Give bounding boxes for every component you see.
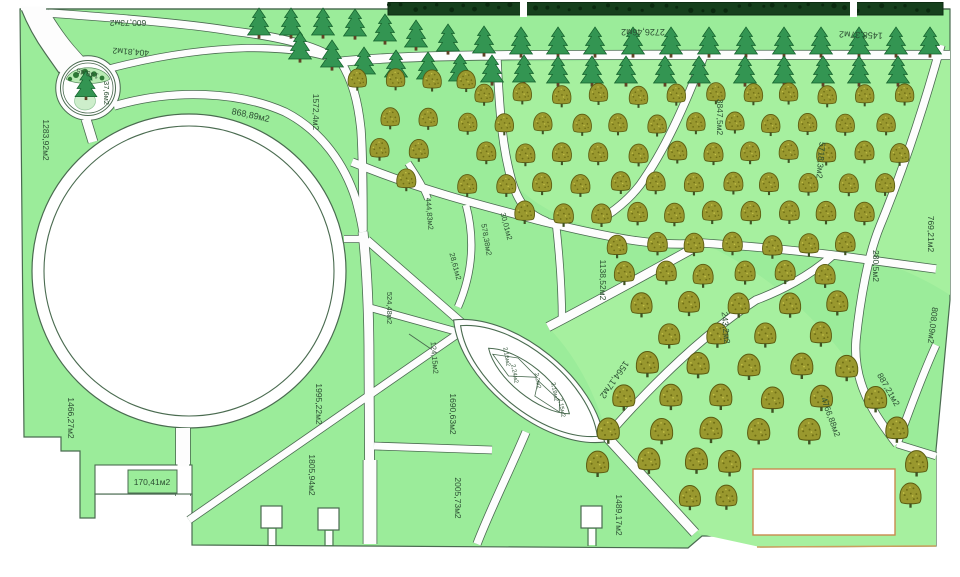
svg-text:1995,22м2: 1995,22м2 bbox=[314, 383, 324, 425]
svg-text:1138,52м2: 1138,52м2 bbox=[598, 260, 608, 301]
svg-text:3847,5м2: 3847,5м2 bbox=[715, 99, 725, 136]
svg-text:1690,63м2: 1690,63м2 bbox=[448, 393, 458, 435]
svg-text:524,48м2: 524,48м2 bbox=[385, 292, 394, 324]
svg-text:170,41м2: 170,41м2 bbox=[134, 477, 171, 487]
svg-text:600,73м2: 600,73м2 bbox=[109, 18, 146, 28]
svg-text:280,5м2: 280,5м2 bbox=[871, 250, 881, 282]
svg-text:1489,17м2: 1489,17м2 bbox=[614, 494, 624, 536]
svg-text:2005,73м2: 2005,73м2 bbox=[453, 477, 463, 519]
svg-text:1805,94м2: 1805,94м2 bbox=[307, 454, 317, 496]
svg-text:1466,27м2: 1466,27м2 bbox=[66, 397, 76, 439]
svg-text:1283,92м2: 1283,92м2 bbox=[41, 119, 51, 161]
svg-text:1458,37м2: 1458,37м2 bbox=[839, 29, 883, 41]
svg-text:37,6м2: 37,6м2 bbox=[102, 81, 111, 105]
svg-text:2726,46м2: 2726,46м2 bbox=[621, 27, 665, 37]
svg-text:769,21м2: 769,21м2 bbox=[926, 216, 936, 253]
svg-text:1572,4м2: 1572,4м2 bbox=[311, 94, 321, 131]
